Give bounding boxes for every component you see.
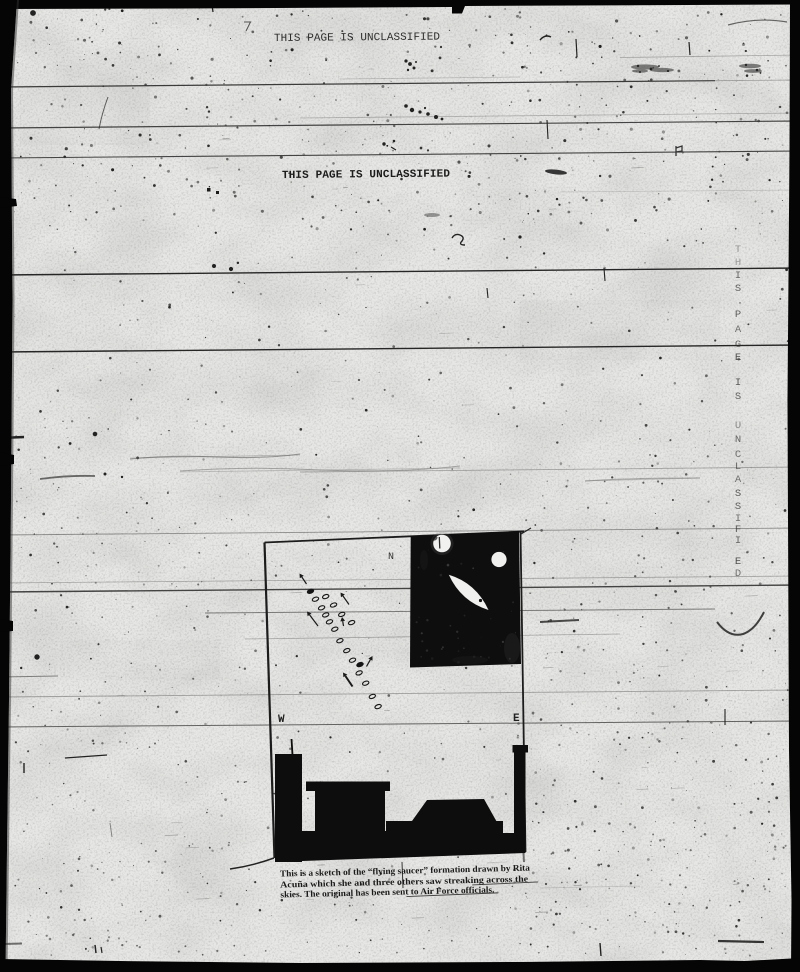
svg-text:E: E (735, 556, 741, 568)
svg-text:E: E (735, 352, 741, 364)
svg-text:N: N (388, 552, 394, 563)
svg-text:A: A (735, 324, 742, 336)
svg-text:W: W (278, 714, 285, 726)
svg-text:G: G (735, 339, 741, 351)
svg-text:P: P (735, 309, 741, 321)
svg-text:I: I (735, 270, 741, 282)
svg-text:E: E (513, 713, 520, 725)
svg-text:C: C (735, 449, 741, 461)
svg-text:T: T (735, 244, 741, 256)
svg-text:S: S (735, 391, 741, 403)
svg-text:S: S (735, 488, 741, 500)
svg-text:H: H (735, 257, 741, 269)
svg-text:S: S (735, 283, 741, 295)
svg-text:L: L (735, 461, 741, 473)
svg-text:THIS PAGE IS UNCLASSIFIED: THIS PAGE IS UNCLASSIFIED (274, 32, 440, 45)
svg-text:U: U (735, 420, 741, 432)
svg-text:D: D (735, 568, 741, 580)
svg-text:S: S (735, 501, 741, 513)
svg-text:N: N (735, 434, 741, 446)
svg-text:I: I (735, 377, 741, 389)
svg-text:THIS PAGE IS UNCLASSIFIED: THIS PAGE IS UNCLASSIFIED (282, 169, 450, 182)
svg-text:I: I (735, 535, 741, 547)
svg-text:A: A (735, 474, 742, 486)
